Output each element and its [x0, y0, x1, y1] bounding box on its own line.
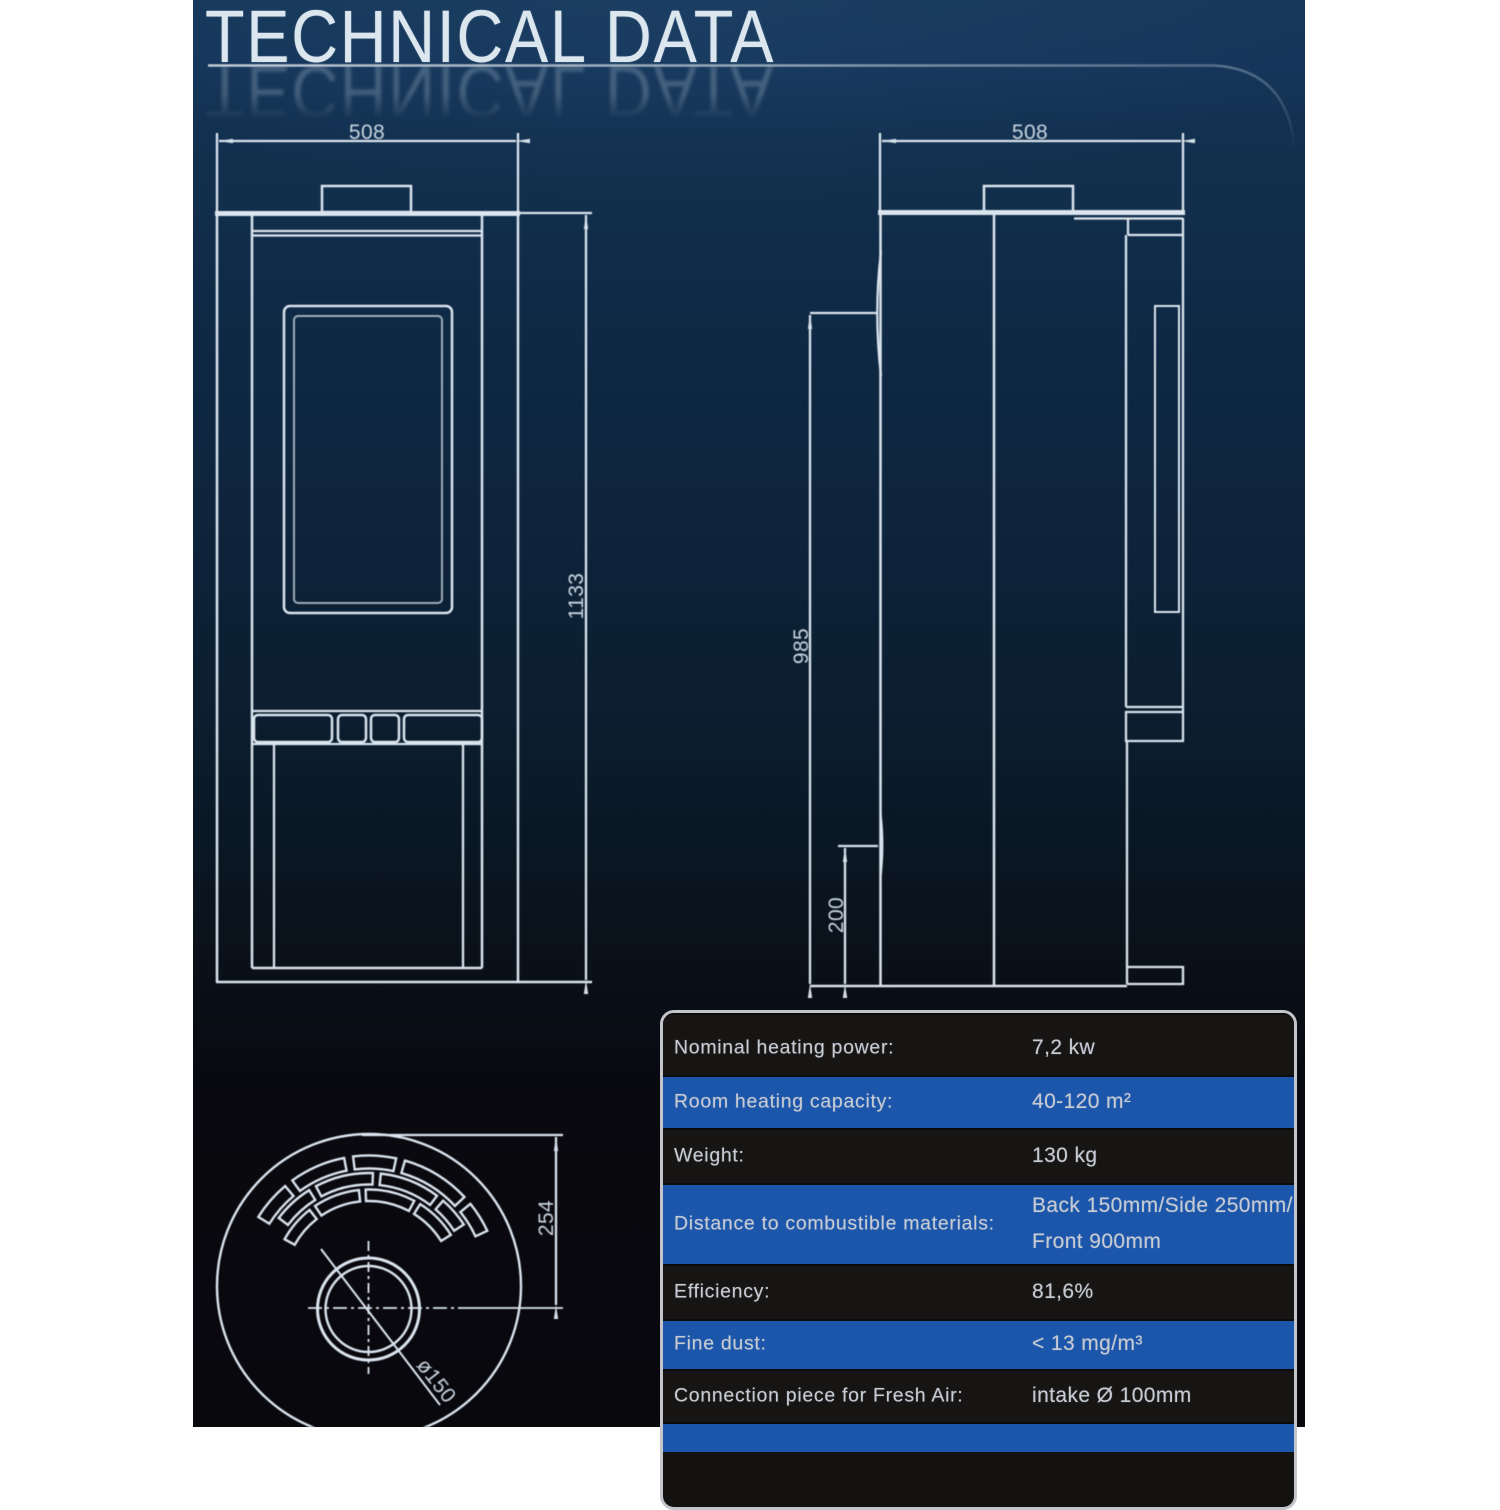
svg-text:1133: 1133: [565, 573, 588, 620]
svg-text:ø150: ø150: [412, 1354, 461, 1407]
svg-text:254: 254: [535, 1200, 558, 1236]
svg-text:508: 508: [1012, 121, 1048, 144]
svg-text:985: 985: [790, 628, 813, 664]
svg-text:200: 200: [825, 897, 848, 933]
svg-text:508: 508: [349, 121, 385, 144]
